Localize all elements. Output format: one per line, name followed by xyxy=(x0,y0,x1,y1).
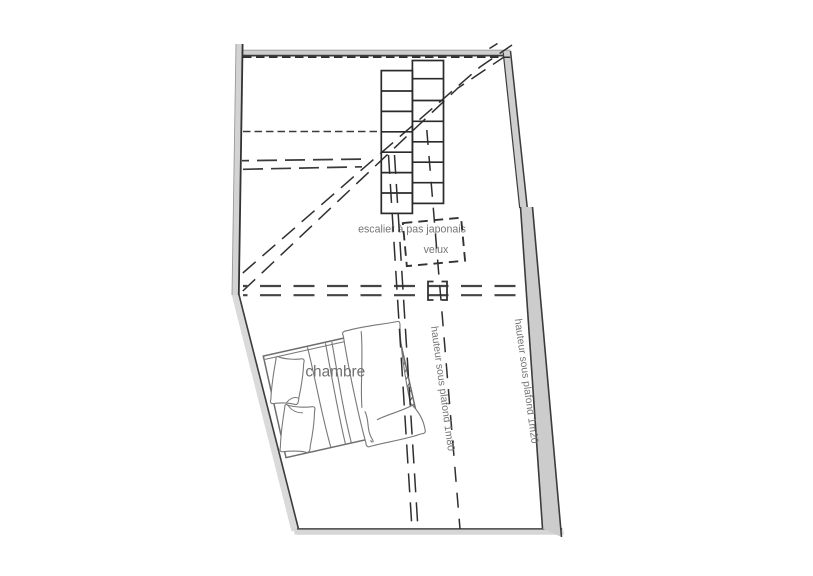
svg-text:chambre: chambre xyxy=(305,364,365,381)
svg-text:escalier à pas japonais: escalier à pas japonais xyxy=(358,224,466,236)
